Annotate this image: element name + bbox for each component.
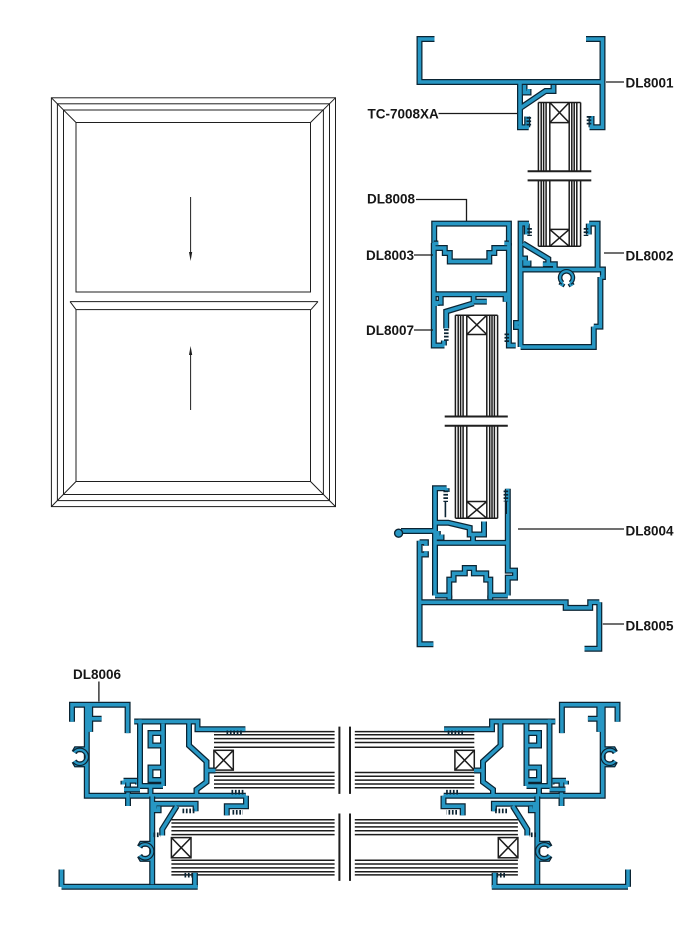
svg-text:DL8001: DL8001 — [626, 76, 675, 91]
svg-text:DL8006: DL8006 — [73, 667, 122, 682]
svg-text:DL8008: DL8008 — [367, 192, 416, 207]
svg-text:DL8003: DL8003 — [366, 248, 415, 263]
svg-text:DL8005: DL8005 — [626, 619, 675, 634]
svg-text:DL8002: DL8002 — [626, 249, 674, 264]
svg-text:DL8007: DL8007 — [366, 323, 414, 338]
svg-text:DL8004: DL8004 — [626, 524, 675, 539]
svg-text:TC-7008XA: TC-7008XA — [368, 107, 440, 122]
